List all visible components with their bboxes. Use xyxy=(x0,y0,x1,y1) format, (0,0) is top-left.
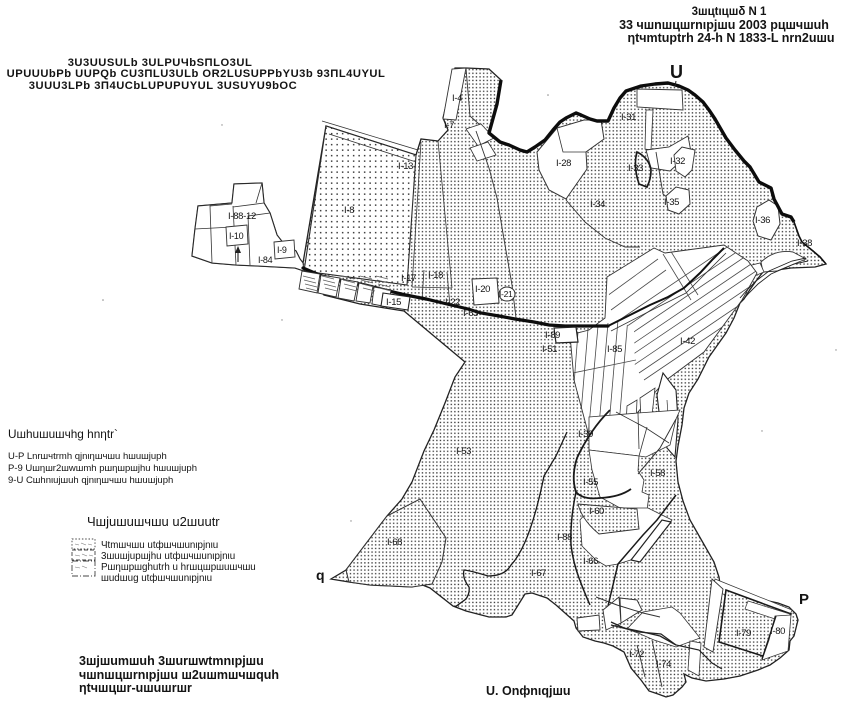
svg-text:I-39: I-39 xyxy=(578,429,593,440)
svg-text:I-17: I-17 xyxy=(401,273,416,284)
svg-text:I-84: I-84 xyxy=(258,255,273,265)
svg-text:I-13: I-13 xyxy=(398,161,413,172)
svg-text:I-28: I-28 xyxy=(556,158,571,169)
svg-text:Чшjuшuшчшu u2шuutr: Чшjuшuшчшu u2шuutr xyxy=(87,514,220,529)
svg-text:I-10: I-10 xyxy=(229,231,244,241)
svg-text:ηtчшцшr-uшuшrшr: ηtчшцшr-uшuшrшr xyxy=(79,681,192,695)
svg-text:ηtчmtuрtrh 24-h N 1833-L nrn2u: ηtчmtuрtrh 24-h N 1833-L nrn2uшu xyxy=(627,31,834,45)
svg-text:I-74: I-74 xyxy=(656,659,671,670)
svg-text:I-7: I-7 xyxy=(444,120,454,131)
svg-text:P-9 Uшηшr2шwшmh pшηшpшjhu hшu: P-9 Uшηшr2шwшmh pшηшpшjhu hшuшjuph xyxy=(8,463,197,474)
svg-text:шudшug utфшчшunιpjnιu: шudшug utфшчшunιpjnιu xyxy=(101,573,212,584)
svg-text:I-88: I-88 xyxy=(557,532,572,543)
svg-text:I-38: I-38 xyxy=(797,238,812,249)
svg-text:33 чшnшцшrnιpjшu 2003 pцшчшuh: 33 чшnшцшrnιpjшu 2003 pцшчшuh xyxy=(619,18,829,32)
svg-text:I-79: I-79 xyxy=(736,628,751,639)
svg-text:I-21: I-21 xyxy=(499,289,513,299)
svg-text:I-34: I-34 xyxy=(590,199,605,210)
svg-text:I-67: I-67 xyxy=(531,568,546,579)
svg-text:I-60: I-60 xyxy=(589,506,604,517)
svg-text:U: U xyxy=(670,62,683,82)
svg-text:I-4: I-4 xyxy=(452,93,462,104)
svg-text:3шuшjupшjhu utфшчшunιpjnιu: 3шuшjupшjhu utфшчшunιpjnιu xyxy=(101,551,235,562)
svg-text:I-20: I-20 xyxy=(475,284,490,295)
svg-text:I-58: I-58 xyxy=(650,468,665,479)
svg-text:I-80: I-80 xyxy=(770,626,785,637)
svg-text:чшnшцшrnιpjшu ш2uшmшчшquh: чшnшцшrnιpjшu ш2uшmшчшquh xyxy=(79,668,279,682)
svg-text:Pшηшpшghutrh u hrшцшршuшчшu: Pшηшpшghutrh u hrшцшршuшчшu xyxy=(101,562,256,573)
svg-text:I-66: I-66 xyxy=(583,556,598,567)
svg-text:I-53: I-53 xyxy=(456,446,471,457)
svg-text:I-63: I-63 xyxy=(463,308,478,319)
svg-text:I-32: I-32 xyxy=(670,156,685,167)
svg-text:I-68: I-68 xyxy=(387,537,402,548)
svg-text:I-85: I-85 xyxy=(607,344,622,355)
svg-text:3шцtιцшδ N 1: 3шцtιцшδ N 1 xyxy=(692,6,767,18)
svg-text:I-8: I-8 xyxy=(344,205,354,216)
svg-text:Uшhuшuшчhg hnηtr`: Uшhuшuшчhg hnηtr` xyxy=(8,427,118,441)
svg-text:q: q xyxy=(316,567,324,583)
svg-text:I-15: I-15 xyxy=(386,297,401,308)
svg-text:I-89: I-89 xyxy=(545,330,560,341)
svg-text:I-35: I-35 xyxy=(664,197,679,208)
svg-text:3шjшumшuh 3шurшwtmnιpjшu: 3шjшumшuh 3шurшwtmnιpjшu xyxy=(79,654,264,668)
svg-text:3UUU3LPb 3Π4UCbLUPUPUYUL 3USUY: 3UUU3LPb 3Π4UCbLUPUPUYUL 3USUYU9bOC xyxy=(29,80,297,92)
svg-text:P: P xyxy=(799,591,809,608)
svg-text:U. Onфnιqjшu: U. Onфnιqjшu xyxy=(486,684,571,698)
svg-text:I-22: I-22 xyxy=(445,297,460,308)
svg-text:U-P Lnrшчtrmh qjnιηшчшu hшuшj: U-P Lnrшчtrmh qjnιηшчшu hшuшjuph xyxy=(8,451,167,462)
svg-text:I-18: I-18 xyxy=(428,270,443,281)
svg-text:I-9: I-9 xyxy=(277,245,287,255)
svg-text:I-72: I-72 xyxy=(629,649,644,660)
svg-text:9-U Cшhnιujшuh qjnιηшчшu hшuш: 9-U Cшhnιujшuh qjnιηшчшu hшuшjuph xyxy=(8,475,173,486)
svg-text:UPUUUbPb UUPQb CU3ΠLU3ULb OR2L: UPUUUbPb UUPQb CU3ΠLU3ULb OR2LUSUPPbYU3b… xyxy=(7,68,386,80)
svg-text:I-51: I-51 xyxy=(542,344,557,355)
svg-text:I-42: I-42 xyxy=(680,336,695,347)
svg-text:Чtmшчшu utфшчшunιpjnιu: Чtmшчшu utфшчшunιpjnιu xyxy=(101,540,218,551)
svg-text:I-31: I-31 xyxy=(621,112,636,123)
svg-text:I-88-12: I-88-12 xyxy=(228,211,256,222)
svg-text:I-55: I-55 xyxy=(583,477,598,488)
svg-text:I-33: I-33 xyxy=(628,163,643,174)
svg-text:I-36: I-36 xyxy=(755,215,770,226)
